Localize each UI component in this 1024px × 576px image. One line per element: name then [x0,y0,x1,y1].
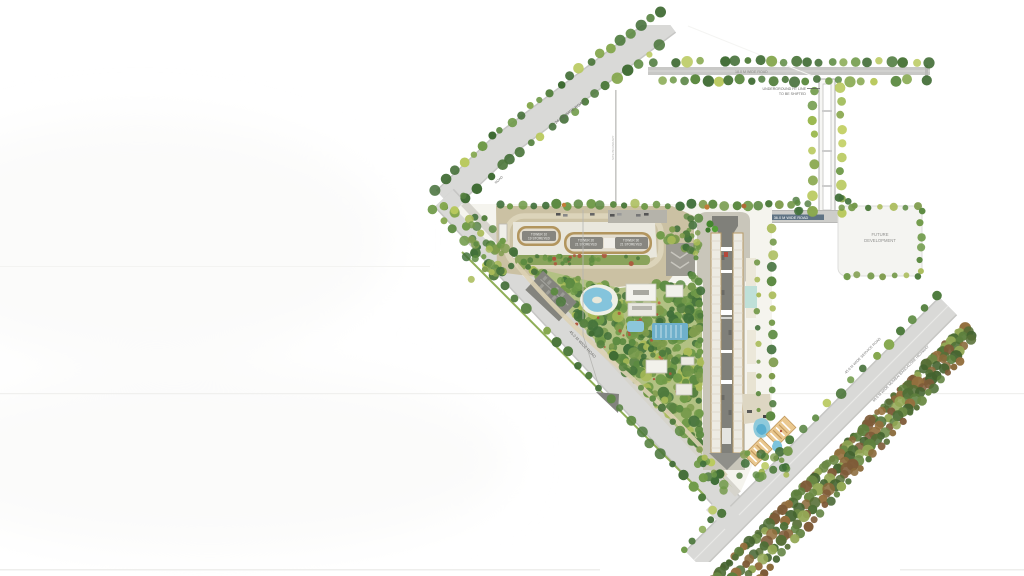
svg-text:UNDERGROUND HT LINE: UNDERGROUND HT LINE [763,87,807,91]
svg-text:FUTURE: FUTURE [872,232,889,237]
svg-text:36.0 M WIDE ROAD: 36.0 M WIDE ROAD [774,216,809,220]
svg-text:TO BE SHIFTED: TO BE SHIFTED [779,92,806,96]
svg-text:18.0 M WIDE ROAD: 18.0 M WIDE ROAD [735,70,768,74]
svg-text:21 STOREYED: 21 STOREYED [620,243,643,247]
svg-text:SITE BOUNDARY: SITE BOUNDARY [611,136,615,160]
svg-text:19 STOREYED: 19 STOREYED [528,237,551,241]
svg-text:DEVELOPMENT: DEVELOPMENT [864,238,896,243]
svg-text:21 STOREYED: 21 STOREYED [575,243,598,247]
